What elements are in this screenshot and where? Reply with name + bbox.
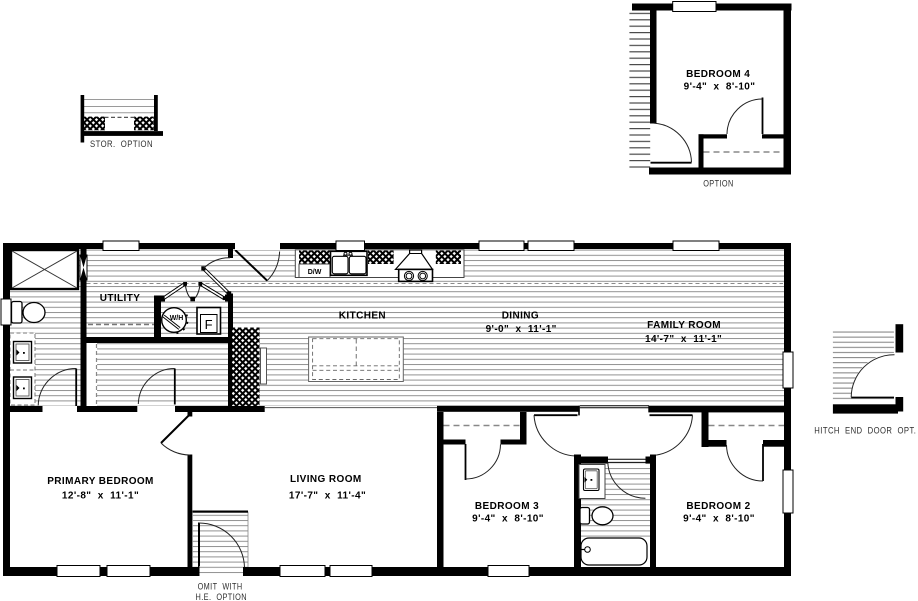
svg-text:9'-4" x 8'-10": 9'-4" x 8'-10": [683, 513, 755, 524]
svg-text:12'-8" x 11'-1": 12'-8" x 11'-1": [62, 490, 139, 501]
svg-text:STOR. OPTION: STOR. OPTION: [90, 139, 153, 149]
svg-text:HITCH END DOOR OPT.: HITCH END DOOR OPT.: [814, 425, 916, 435]
svg-text:UTILITY: UTILITY: [100, 293, 141, 304]
svg-text:DINING: DINING: [502, 311, 539, 322]
svg-text:9'-4" x 8'-10": 9'-4" x 8'-10": [684, 81, 756, 92]
svg-text:14'-7" x 11'-1": 14'-7" x 11'-1": [645, 334, 722, 345]
svg-text:FAMILY ROOM: FAMILY ROOM: [647, 320, 721, 331]
svg-text:D/W: D/W: [308, 269, 322, 276]
svg-text:W/H: W/H: [170, 315, 184, 322]
svg-text:OMIT WITH: OMIT WITH: [198, 581, 243, 591]
svg-text:9'-4" x 8'-10": 9'-4" x 8'-10": [472, 513, 544, 524]
svg-text:9'-0" x 11'-1": 9'-0" x 11'-1": [486, 324, 557, 335]
svg-text:BEDROOM 3: BEDROOM 3: [475, 501, 539, 512]
svg-text:BEDROOM 2: BEDROOM 2: [686, 501, 750, 512]
svg-text:OPTION: OPTION: [703, 179, 734, 189]
svg-text:F: F: [205, 317, 213, 332]
svg-text:17'-7" x 11'-4": 17'-7" x 11'-4": [289, 491, 366, 502]
svg-text:BEDROOM 4: BEDROOM 4: [686, 69, 750, 80]
svg-text:PRIMARY BEDROOM: PRIMARY BEDROOM: [47, 476, 154, 487]
svg-text:LIVING ROOM: LIVING ROOM: [290, 474, 362, 485]
svg-text:H.E. OPTION: H.E. OPTION: [196, 592, 248, 601]
svg-text:KITCHEN: KITCHEN: [339, 310, 386, 321]
